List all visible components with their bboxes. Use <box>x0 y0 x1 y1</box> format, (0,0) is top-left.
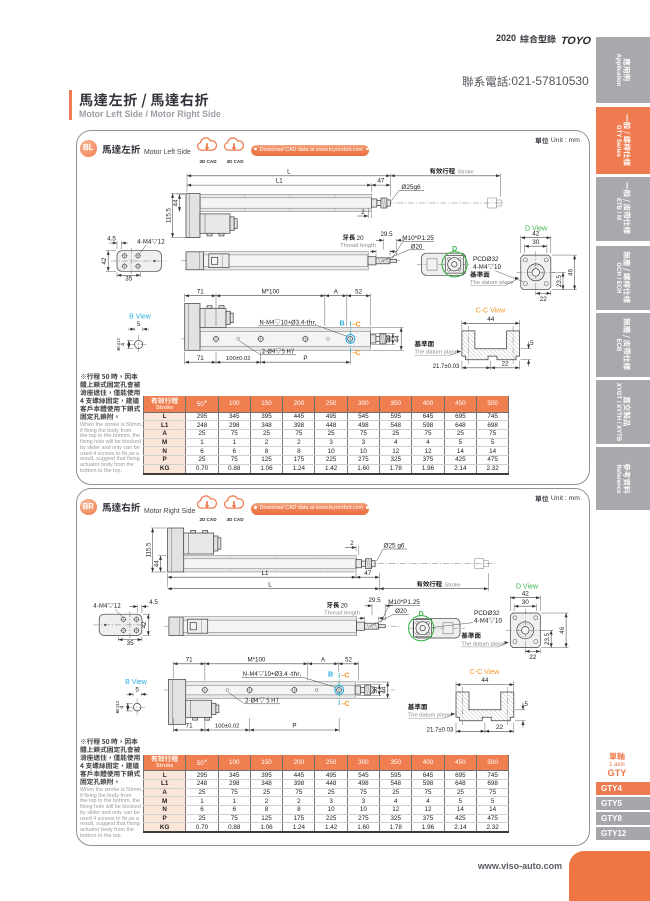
svg-text:M*100: M*100 <box>247 656 265 663</box>
svg-text:29.5: 29.5 <box>368 597 381 604</box>
svg-text:44: 44 <box>481 677 489 684</box>
svg-text:42: 42 <box>522 591 530 598</box>
svg-text:35: 35 <box>127 640 134 647</box>
svg-text:C-C View: C-C View <box>470 669 500 676</box>
svg-text:44: 44 <box>380 686 387 693</box>
svg-text:115.5: 115.5 <box>165 207 172 223</box>
svg-text:71: 71 <box>186 723 193 730</box>
svg-text:Thread length: Thread length <box>324 610 360 616</box>
svg-text:4.5: 4.5 <box>107 235 116 242</box>
svg-text:46: 46 <box>559 626 566 634</box>
svg-text:29.5: 29.5 <box>380 231 393 238</box>
svg-text:22: 22 <box>529 654 537 661</box>
svg-text:M10*P1.25: M10*P1.25 <box>402 234 434 241</box>
svg-text:D: D <box>419 611 424 618</box>
svg-text:P: P <box>292 723 296 730</box>
svg-text:100±0.02: 100±0.02 <box>226 355 251 361</box>
svg-text:M10*P1.25: M10*P1.25 <box>388 599 420 606</box>
svg-text:20: 20 <box>357 234 365 241</box>
svg-text:M*100: M*100 <box>261 288 279 295</box>
svg-text:C: C <box>344 673 349 680</box>
svg-text:44: 44 <box>487 315 495 322</box>
svg-text:C: C <box>356 321 361 328</box>
svg-text:B View: B View <box>129 313 152 320</box>
svg-text:2: 2 <box>350 540 354 547</box>
svg-text:36: 36 <box>387 334 393 341</box>
svg-text:5: 5 <box>530 340 534 347</box>
svg-text:C-C View: C-C View <box>476 307 506 314</box>
svg-text:52: 52 <box>355 288 362 295</box>
svg-text:Stroke: Stroke <box>445 582 461 588</box>
svg-text:42: 42 <box>141 621 148 628</box>
svg-text:4: 4 <box>121 342 127 346</box>
svg-text:B View: B View <box>125 679 148 686</box>
svg-text:35: 35 <box>125 275 132 282</box>
svg-text:42: 42 <box>101 257 108 264</box>
svg-text:22: 22 <box>501 360 509 367</box>
svg-text:44: 44 <box>394 334 401 341</box>
svg-text:Thread length: Thread length <box>340 242 376 248</box>
svg-text:22: 22 <box>540 295 548 302</box>
svg-text:42: 42 <box>532 230 540 237</box>
svg-text:D: D <box>452 245 457 252</box>
svg-text:L1: L1 <box>262 570 269 577</box>
svg-text:36: 36 <box>373 686 379 693</box>
svg-text:C: C <box>356 350 361 357</box>
svg-text:2: 2 <box>361 208 365 215</box>
svg-text:4.5: 4.5 <box>149 599 158 606</box>
svg-text:115.5: 115.5 <box>145 542 152 558</box>
svg-text:Ø25 g6: Ø25 g6 <box>384 542 405 549</box>
svg-text:C: C <box>344 701 349 708</box>
svg-text:20: 20 <box>341 602 349 609</box>
svg-text:44: 44 <box>153 560 160 567</box>
svg-text:21.7±0.03: 21.7±0.03 <box>427 727 454 733</box>
svg-text:71: 71 <box>197 288 204 295</box>
svg-text:46: 46 <box>567 268 574 276</box>
svg-text:21.7±0.03: 21.7±0.03 <box>433 363 460 369</box>
svg-text:44: 44 <box>172 199 179 206</box>
svg-text:30: 30 <box>532 239 540 246</box>
svg-text:5: 5 <box>137 321 141 328</box>
svg-text:23.5: 23.5 <box>544 632 551 645</box>
svg-text:A: A <box>321 656 326 663</box>
svg-text:Stroke: Stroke <box>458 169 474 175</box>
svg-text:D View: D View <box>516 584 539 591</box>
svg-text:L: L <box>268 581 272 588</box>
svg-text:71: 71 <box>197 354 204 361</box>
svg-text:L1: L1 <box>276 177 283 184</box>
svg-text:B: B <box>339 320 344 327</box>
svg-text:23.5: 23.5 <box>556 274 563 287</box>
svg-text:52: 52 <box>345 656 352 663</box>
svg-text:PCDØ32: PCDØ32 <box>474 610 500 617</box>
svg-text:P: P <box>303 354 307 361</box>
svg-text:47: 47 <box>364 570 371 577</box>
svg-text:Ø20: Ø20 <box>395 608 407 615</box>
svg-text:PCDØ32: PCDØ32 <box>473 256 499 263</box>
svg-text:The datum plane: The datum plane <box>461 641 505 647</box>
svg-text:30: 30 <box>522 599 530 606</box>
svg-text:B: B <box>328 672 333 679</box>
svg-text:A: A <box>334 288 339 295</box>
svg-text:Ø25g6: Ø25g6 <box>401 183 421 190</box>
svg-text:Ø20: Ø20 <box>411 243 423 250</box>
svg-text:5: 5 <box>524 701 528 708</box>
svg-text:47: 47 <box>377 177 384 184</box>
svg-text:71: 71 <box>186 656 193 663</box>
svg-text:100±0.02: 100±0.02 <box>215 724 240 730</box>
svg-text:4: 4 <box>120 705 126 709</box>
svg-text:22: 22 <box>496 724 504 731</box>
svg-text:5: 5 <box>135 686 139 693</box>
svg-text:L: L <box>287 168 291 175</box>
svg-text:The datum plane: The datum plane <box>470 280 514 286</box>
